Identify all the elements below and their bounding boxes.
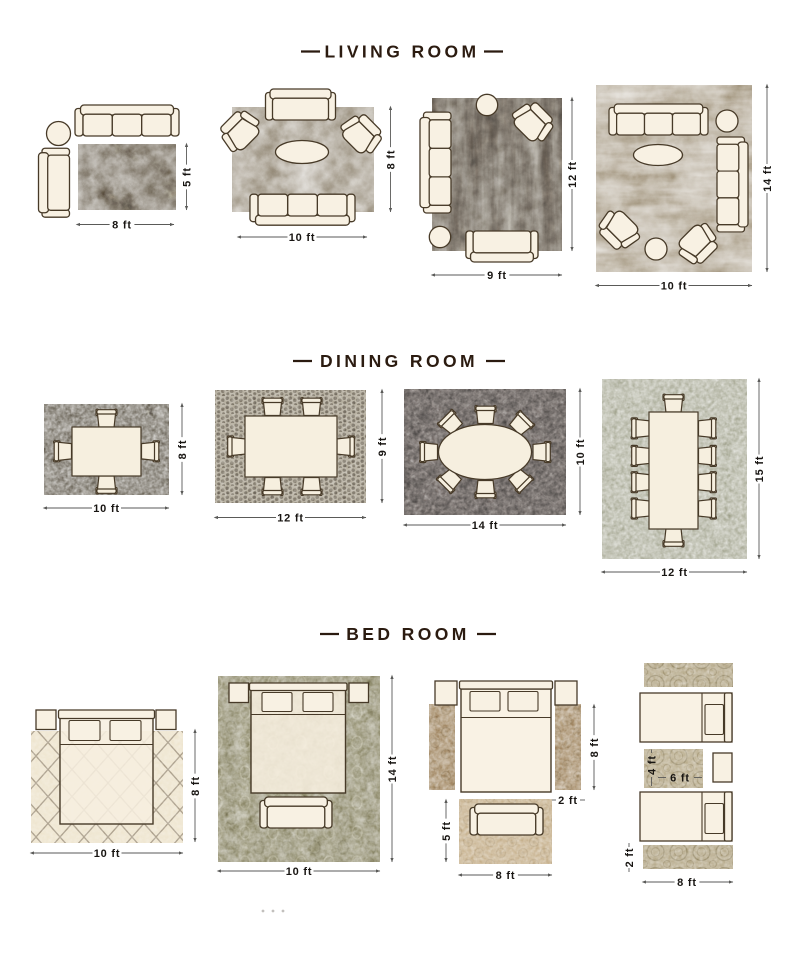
svg-text:DINING ROOM: DINING ROOM — [320, 351, 478, 371]
svg-text:15 ft: 15 ft — [754, 456, 766, 483]
svg-text:14 ft: 14 ft — [387, 756, 399, 783]
svg-text:8 ft: 8 ft — [385, 150, 397, 170]
svg-text:8 ft: 8 ft — [177, 440, 189, 460]
svg-text:6 ft: 6 ft — [670, 772, 690, 784]
svg-text:8 ft: 8 ft — [112, 219, 132, 231]
svg-text:8 ft: 8 ft — [677, 877, 697, 889]
svg-text:14 ft: 14 ft — [472, 520, 499, 532]
svg-text:14 ft: 14 ft — [762, 165, 774, 192]
svg-text:8 ft: 8 ft — [496, 870, 516, 882]
svg-text:10 ft: 10 ft — [661, 280, 688, 292]
svg-text:2 ft: 2 ft — [624, 848, 636, 868]
svg-text:10 ft: 10 ft — [286, 866, 313, 878]
svg-text:10 ft: 10 ft — [575, 439, 587, 466]
svg-text:10 ft: 10 ft — [93, 503, 120, 515]
svg-text:5 ft: 5 ft — [181, 167, 193, 187]
svg-text:12 ft: 12 ft — [661, 567, 688, 579]
svg-text:2 ft: 2 ft — [558, 795, 578, 807]
svg-text:12 ft: 12 ft — [277, 512, 304, 524]
svg-text:9 ft: 9 ft — [487, 270, 507, 282]
svg-text:10 ft: 10 ft — [289, 232, 316, 244]
svg-text:4 ft: 4 ft — [646, 755, 658, 775]
svg-text:9 ft: 9 ft — [377, 437, 389, 457]
svg-text:8 ft: 8 ft — [589, 738, 601, 758]
svg-text:5 ft: 5 ft — [441, 821, 453, 841]
svg-text:10 ft: 10 ft — [94, 848, 121, 860]
svg-text:8 ft: 8 ft — [190, 776, 202, 796]
svg-text:LIVING ROOM: LIVING ROOM — [324, 42, 479, 62]
svg-text:12 ft: 12 ft — [567, 161, 579, 188]
svg-text:BED ROOM: BED ROOM — [346, 624, 469, 644]
